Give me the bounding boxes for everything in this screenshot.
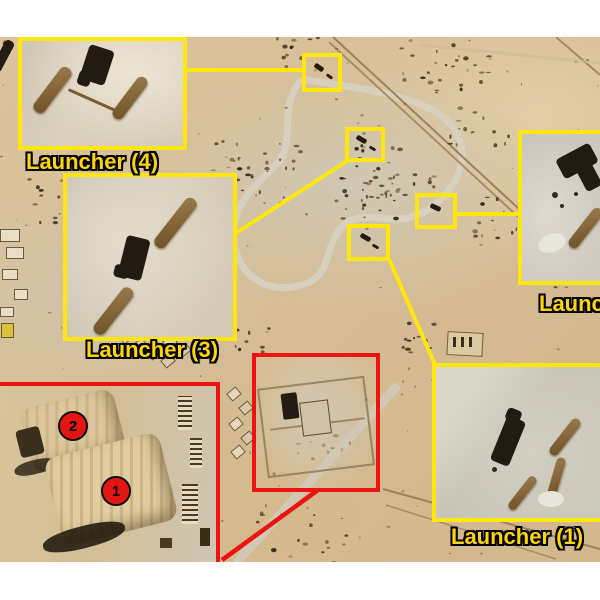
corner-road <box>556 37 600 75</box>
vehicle-blob <box>574 160 600 193</box>
ground-dot <box>492 467 497 472</box>
connector-red-inset <box>222 490 318 560</box>
edge-building <box>6 247 24 259</box>
small-building <box>230 444 246 459</box>
left-edge-dark-object <box>0 39 15 74</box>
berm-bar <box>110 74 150 121</box>
light-patch <box>536 230 568 256</box>
yellow-roof-building <box>1 323 14 338</box>
ground-dot <box>560 204 564 208</box>
edge-building <box>0 307 14 317</box>
launcher3-inset <box>63 173 237 341</box>
dark-structure <box>160 538 172 548</box>
berm-bar <box>152 195 199 250</box>
side-structure <box>182 484 198 524</box>
light-patch <box>538 491 564 507</box>
target-box-d <box>347 224 390 261</box>
connector-launcher3 <box>236 161 347 233</box>
vehicle-blob <box>490 415 527 467</box>
small-building <box>226 386 242 401</box>
central-red-target-box <box>252 353 380 492</box>
dark-structure <box>200 528 210 546</box>
marker-circle-1: 1 <box>101 476 131 506</box>
edge-building <box>2 269 18 280</box>
satellite-photo: Launcher (4) Launcher (3) Launcher (2) <box>0 37 600 562</box>
launcher1-inset <box>432 363 600 522</box>
berm-bar <box>566 206 600 251</box>
annotated-satellite-overview: Launcher (4) Launcher (3) Launcher (2) <box>0 0 600 600</box>
ground-dot <box>552 192 558 198</box>
hangar-inset: 2 1 <box>0 382 220 562</box>
side-structure <box>178 396 192 430</box>
launcher4-inset <box>18 37 187 150</box>
ground-dot <box>574 192 578 196</box>
target-box-b <box>345 127 385 162</box>
ne-storage-dots <box>453 337 475 347</box>
side-structure <box>190 438 202 468</box>
berm-bar <box>507 474 539 511</box>
marker-circle-2: 2 <box>58 411 88 441</box>
vehicle-blob <box>76 69 93 87</box>
small-building <box>228 416 244 431</box>
target-box-a <box>302 53 342 92</box>
launcher2-inset <box>518 130 600 285</box>
connector-launcher1 <box>389 259 436 367</box>
marker-2-number: 2 <box>69 418 77 435</box>
berm-bar <box>548 417 583 458</box>
berm-bar <box>91 285 136 337</box>
edge-building <box>14 289 28 300</box>
edge-building <box>0 229 20 242</box>
launcher1-label: Launcher (1) <box>451 524 583 550</box>
launcher3-label: Launcher (3) <box>86 337 218 363</box>
launcher4-label: Launcher (4) <box>26 149 158 175</box>
launcher2-label: Launcher (2) <box>539 291 600 317</box>
thin-berm-rod <box>68 88 119 113</box>
target-box-c <box>415 193 457 229</box>
top-road <box>420 45 600 63</box>
marker-1-number: 1 <box>112 483 120 500</box>
